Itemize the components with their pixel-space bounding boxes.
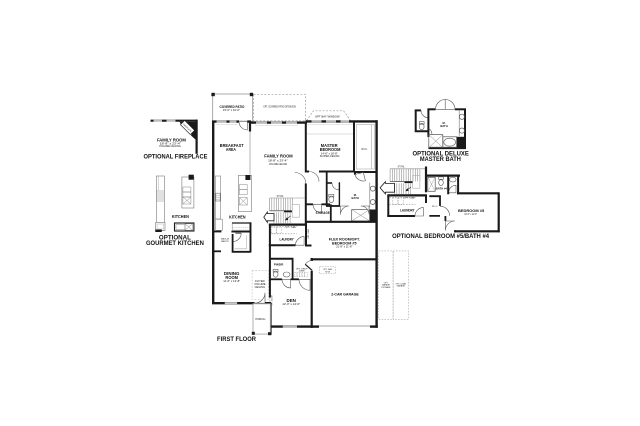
svg-text:LAUNDRY: LAUNDRY xyxy=(400,209,415,213)
svg-text:CEILING: CEILING xyxy=(255,285,265,289)
svg-text:11'-0" x 13'-8": 11'-0" x 13'-8" xyxy=(223,279,240,283)
svg-text:OPT. RAIL: OPT. RAIL xyxy=(398,166,405,169)
svg-text:OPT. COVERED PATIO EXTENSION: OPT. COVERED PATIO EXTENSION xyxy=(263,105,296,109)
svg-text:KITCHEN: KITCHEN xyxy=(172,214,189,219)
svg-text:10'-0" x 11'-0": 10'-0" x 11'-0" xyxy=(464,212,477,216)
svg-text:VOLUME CEILING: VOLUME CEILING xyxy=(269,162,287,166)
svg-text:LAUNDRY: LAUNDRY xyxy=(280,238,295,242)
svg-text:21'-8" x 11'-8": 21'-8" x 11'-8" xyxy=(336,244,352,248)
svg-text:OPT. DOOR: OPT. DOOR xyxy=(272,294,274,305)
svg-text:AREA: AREA xyxy=(226,147,236,152)
svg-text:OPT BAY WINDOW: OPT BAY WINDOW xyxy=(315,114,340,118)
svg-text:STORAGE: STORAGE xyxy=(316,211,331,215)
svg-text:GOURMET KITCHEN: GOURMET KITCHEN xyxy=(146,240,204,247)
svg-text:W.I.C.: W.I.C. xyxy=(361,148,368,151)
svg-text:15'-0" x 10'-0": 15'-0" x 10'-0" xyxy=(223,108,240,112)
svg-text:VOLUME CEILING: VOLUME CEILING xyxy=(159,144,181,148)
svg-text:PWDR: PWDR xyxy=(274,263,284,267)
svg-text:12'-0" x 14'-0": 12'-0" x 14'-0" xyxy=(282,302,300,306)
svg-text:OPT. CAB: OPT. CAB xyxy=(285,226,297,229)
svg-text:OPTIONAL BEDROOM #5/BATH #4: OPTIONAL BEDROOM #5/BATH #4 xyxy=(392,233,489,240)
svg-text:PORCH: PORCH xyxy=(256,317,266,321)
svg-text:FIRST FLOOR: FIRST FLOOR xyxy=(217,336,256,343)
svg-text:STUB: STUB xyxy=(325,271,330,273)
svg-text:GARAGE: GARAGE xyxy=(397,285,406,288)
svg-text:OPT. SINK: OPT. SINK xyxy=(308,228,310,238)
svg-text:BATH: BATH xyxy=(440,124,447,128)
svg-text:OPTIONAL FIREPLACE: OPTIONAL FIREPLACE xyxy=(144,153,209,160)
svg-text:BATH #4: BATH #4 xyxy=(436,187,448,191)
svg-text:MASTER BATH: MASTER BATH xyxy=(420,156,461,163)
svg-text:W.I.C.: W.I.C. xyxy=(432,206,438,208)
svg-text:KITCHEN: KITCHEN xyxy=(229,215,245,220)
svg-text:OPT. CAB: OPT. CAB xyxy=(404,197,416,200)
svg-text:2-CAR GARAGE: 2-CAR GARAGE xyxy=(331,292,359,297)
svg-text:STORAGE: STORAGE xyxy=(381,286,391,289)
svg-text:BATH: BATH xyxy=(352,196,359,200)
svg-text:SLOPED CEILING: SLOPED CEILING xyxy=(320,154,340,158)
svg-text:PANTRY: PANTRY xyxy=(221,240,230,243)
